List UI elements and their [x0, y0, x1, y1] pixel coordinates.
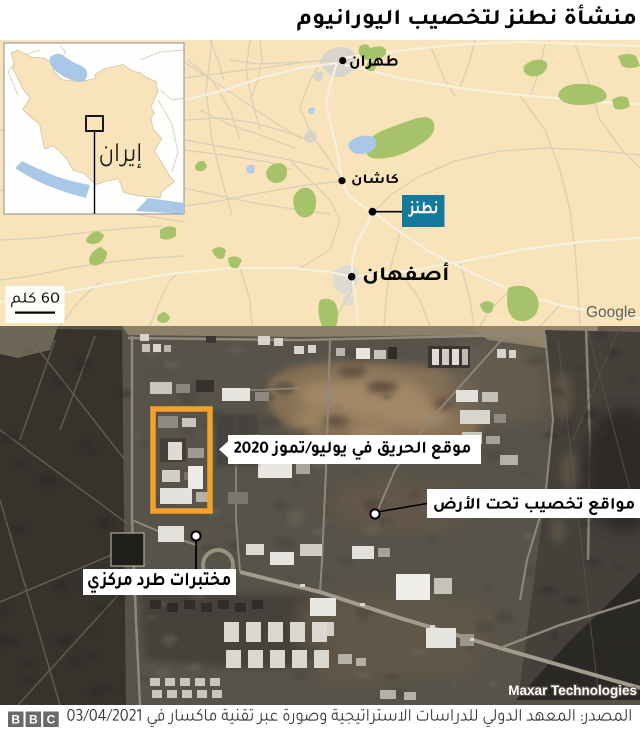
svg-text:C: C: [47, 713, 56, 727]
svg-text:Maxar Technologies: Maxar Technologies: [508, 683, 637, 698]
svg-text:B: B: [29, 713, 38, 727]
svg-text:Google: Google: [586, 304, 636, 321]
svg-text:B: B: [11, 713, 20, 727]
